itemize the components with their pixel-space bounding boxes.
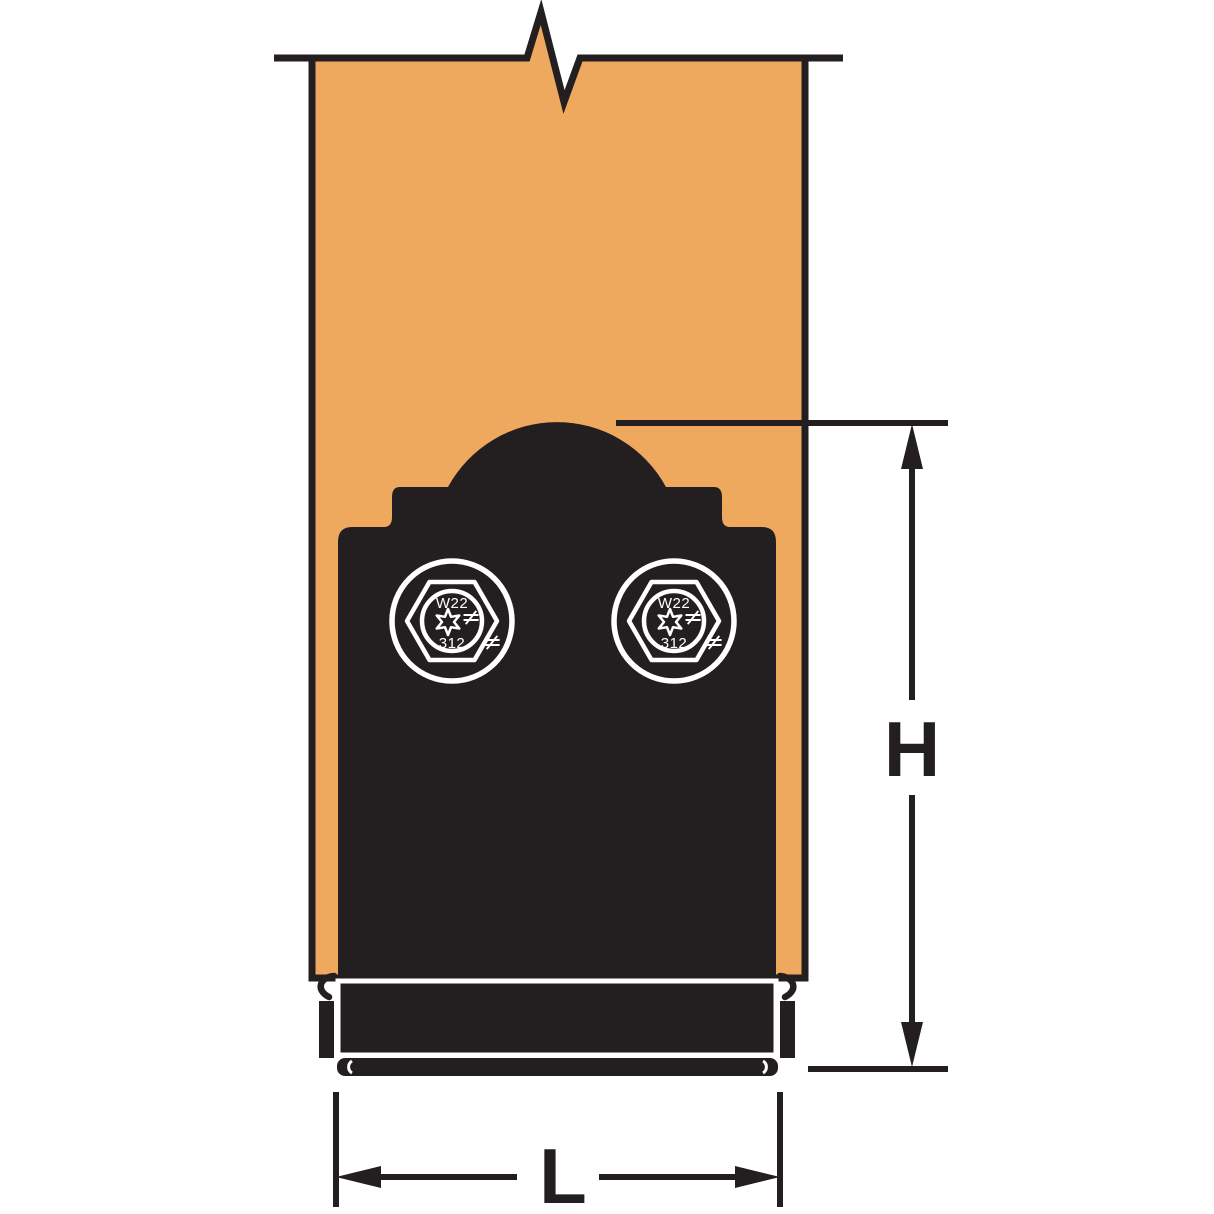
arrowhead-left-icon xyxy=(336,1166,381,1188)
height-label: H xyxy=(884,705,940,793)
roll-hook-left xyxy=(321,976,334,997)
roll-hook-right xyxy=(780,976,793,997)
post-base-diagram: W22 312 ≠ ≠ H xyxy=(0,0,1214,1214)
base-band xyxy=(338,981,776,1055)
standoff-base-group xyxy=(319,976,795,1076)
diagram-canvas: W22 312 ≠ ≠ H xyxy=(0,0,1214,1214)
arrowhead-right-icon xyxy=(735,1166,780,1188)
bolt-left xyxy=(392,561,512,681)
arrowhead-up-icon xyxy=(901,424,923,469)
length-dimension-group: L xyxy=(336,1092,780,1214)
base-bottom-strip xyxy=(337,1058,778,1076)
side-flange-left xyxy=(319,1001,334,1058)
length-label: L xyxy=(539,1132,587,1214)
base-plate xyxy=(338,422,776,980)
side-flange-right xyxy=(780,1001,795,1058)
bolt-right xyxy=(614,561,734,681)
arrowhead-down-icon xyxy=(901,1022,923,1067)
